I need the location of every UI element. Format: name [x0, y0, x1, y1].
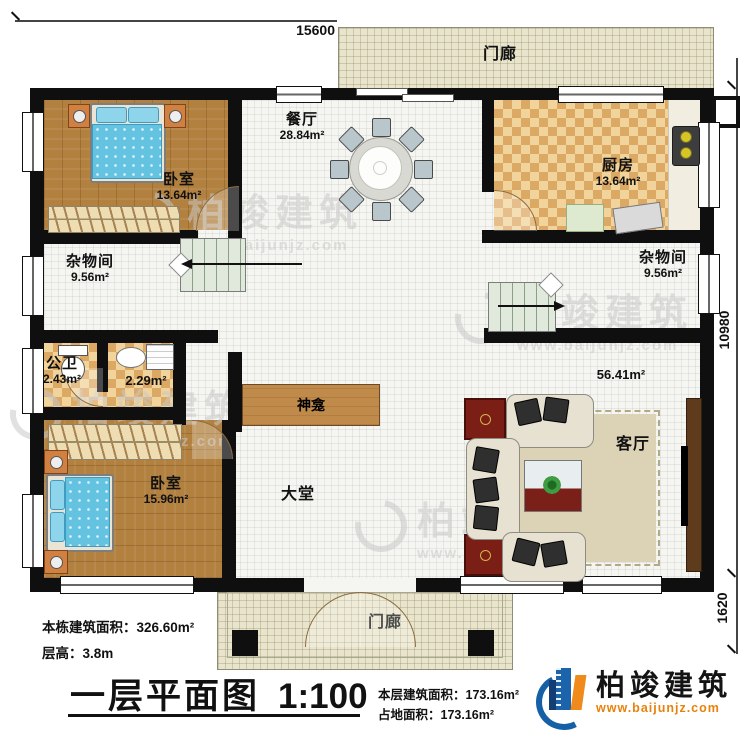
- wall-segment: [30, 407, 186, 420]
- porch-top-label: 门廊: [455, 46, 545, 64]
- bedroom1-label: 卧室13.64m²: [141, 172, 217, 202]
- bed-spread: [65, 477, 110, 547]
- storage-right-label: 杂物间9.56m²: [625, 250, 701, 280]
- window: [22, 112, 44, 172]
- floorplan-page: 15600 10980 1620 门廊 门廊 柏竣建筑www.baijunjz.…: [0, 0, 750, 738]
- window: [22, 256, 44, 316]
- washroom-area-label: 2.29m²: [116, 374, 176, 389]
- dining-table: [349, 137, 413, 201]
- nightstand: [164, 104, 186, 128]
- plant: [543, 476, 561, 494]
- stair-arrowhead: [554, 301, 565, 311]
- entry-door-opening: [304, 578, 416, 592]
- building-area-text: 本栋建筑面积：326.60m²: [42, 616, 194, 636]
- pillow: [50, 480, 65, 510]
- living-label: 客厅: [600, 436, 666, 454]
- dimension-tick: [727, 568, 736, 577]
- window: [698, 122, 720, 208]
- dining-chair: [414, 160, 433, 179]
- dining-chair: [330, 160, 349, 179]
- nightstand: [44, 550, 68, 574]
- dimension-right-lower-label: 1620: [714, 580, 730, 636]
- title-block: 一层平面图1:100: [70, 668, 368, 719]
- pillow: [96, 107, 127, 123]
- bedroom2-label: 卧室15.96m²: [128, 476, 204, 506]
- logo-building-blue: [556, 668, 571, 710]
- stair-arrowhead: [181, 259, 192, 269]
- kitchen-counter-island: [566, 204, 604, 232]
- bathroom-label: 公卫2.43m²: [32, 356, 92, 386]
- dimension-line-right: [736, 58, 738, 654]
- stove-burner: [680, 147, 692, 159]
- wall-segment: [30, 330, 218, 343]
- brand-text-block: 柏竣建筑 www.baijunjz.com: [596, 672, 732, 715]
- sliding-door: [356, 88, 408, 96]
- wash-basin: [116, 347, 146, 368]
- porch-column: [232, 630, 258, 656]
- logo-building-dark: [549, 680, 556, 710]
- window: [558, 86, 664, 103]
- window: [60, 576, 194, 594]
- dimension-tick: [727, 644, 736, 653]
- stair-direction-arrow: [190, 263, 302, 265]
- wall-segment: [228, 352, 242, 432]
- wardrobe: [48, 424, 182, 460]
- dining-chair: [372, 202, 391, 221]
- shrine-label: 神龛: [297, 395, 325, 415]
- wardrobe: [48, 206, 180, 233]
- stair-direction-arrow: [498, 305, 556, 307]
- sofa-cushion: [472, 476, 499, 503]
- brand-name: 柏竣建筑: [596, 672, 732, 701]
- sofa-cushion: [473, 505, 499, 531]
- dining-label: 餐厅28.84m²: [262, 112, 342, 142]
- washing-machine: [146, 344, 174, 370]
- sofa-cushion: [540, 540, 568, 568]
- dining-chair: [372, 118, 391, 137]
- kitchen-label: 厨房13.64m²: [580, 158, 656, 188]
- dimension-tick: [727, 80, 736, 89]
- title-underline: [68, 714, 360, 717]
- nightstand: [68, 104, 90, 128]
- sofa-cushion: [542, 396, 569, 423]
- sofa-cushion: [514, 398, 542, 426]
- end-table: [464, 398, 506, 440]
- living-area-label: 56.41m²: [586, 368, 656, 383]
- sofa-cushion: [472, 446, 500, 474]
- floor-area-text: 本层建筑面积：173.16m²: [378, 684, 519, 703]
- pillow: [128, 107, 159, 123]
- page-title: 一层平面图: [70, 677, 260, 716]
- hall-label: 大堂: [268, 486, 328, 504]
- brand-logo-icon: [536, 666, 588, 722]
- tv: [681, 446, 688, 526]
- storage-left-label: 杂物间9.56m²: [52, 254, 128, 284]
- window: [22, 494, 44, 568]
- wall-segment: [482, 88, 494, 192]
- dimension-top-label: 15600: [240, 22, 335, 38]
- stove-burner: [680, 131, 692, 143]
- bed-spread: [92, 124, 162, 179]
- window: [582, 576, 662, 594]
- sliding-door: [402, 94, 454, 102]
- window: [698, 254, 720, 314]
- footprint-area-text: 占地面积：173.16m²: [378, 704, 494, 723]
- shrine-table: 神龛: [242, 384, 380, 426]
- nightstand: [44, 450, 68, 474]
- tv-cabinet: [686, 398, 702, 572]
- floor-height-text: 层高：3.8m: [42, 642, 113, 662]
- end-table: [464, 534, 506, 576]
- pillow: [50, 512, 65, 542]
- porch-column: [468, 630, 494, 656]
- window: [276, 86, 322, 103]
- brand-website: www.baijunjz.com: [596, 701, 732, 715]
- scale-label: 1:100: [278, 677, 368, 716]
